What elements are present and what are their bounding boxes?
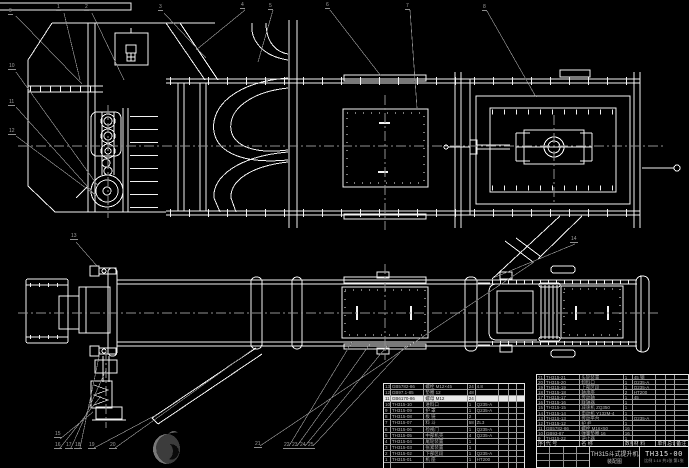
top-view [28,20,680,279]
drawing-footer-note: 比例 1:10 共1张 第1张 [644,458,684,464]
balloon-callout: 8 [482,5,487,11]
drawing-number: TH315-00 [645,450,683,458]
balloon-callout: 20 [109,443,117,449]
bom-cell [517,463,524,468]
balloon-callout: 4 [240,3,245,9]
title-block: TH315斗式提升机 装配图 TH315-00 比例 1:10 共1张 第1张 [536,446,689,468]
balloon-callout: 19 [88,443,96,449]
balloon-callout: 18 [74,443,82,449]
revision-grid [537,447,590,467]
balloon-callout: 24 [299,443,307,449]
bom-table-left: 13GB5782-86螺栓 M12×45244.812GB97.1-85垫圈 1… [383,383,525,468]
bom-cell [476,463,500,468]
balloon-callout: 3 [158,5,163,11]
balloon-callout: 7 [405,4,410,10]
balloon-callout: 21 [254,442,262,448]
bom-cell [424,463,467,468]
drawing-number-cell: TH315-00 比例 1:10 共1张 第1张 [640,447,688,467]
balloon-callout: 16 [54,443,62,449]
balloon-callout: 23 [291,443,299,449]
drawing-title-cell: TH315斗式提升机 装配图 [590,447,640,467]
balloon-callout: 14 [570,237,578,243]
doc-type: 装配图 [607,458,622,465]
balloon-callout: 1 [56,5,61,11]
bom-cell [499,463,509,468]
balloon-callout: 25 [307,443,315,449]
balloon-callout: 9 [8,9,13,15]
bom-row [384,462,524,468]
bom-table-right: 21TH315-21头轮装置145 钢20TH315-20卸料口1Q235-A1… [536,374,689,440]
frame-corner [0,3,131,10]
balloon-callout: 6 [325,3,330,9]
balloon-callout: 11 [8,100,15,106]
bom-cell [391,463,425,468]
logo-blob [153,431,180,464]
balloon-callout: 5 [268,4,273,10]
bom-cell [468,463,476,468]
bom-cell [384,463,391,468]
product-title: TH315斗式提升机 [590,449,638,458]
balloon-callout: 10 [8,64,16,70]
bom-cell [509,463,517,468]
balloon-callout: 22 [283,443,291,449]
balloon-callout: 15 [54,432,62,438]
balloon-callout: 12 [8,129,16,135]
balloon-callout: 17 [65,443,73,449]
balloon-callout: 2 [84,5,89,11]
balloon-callout: 13 [70,234,78,240]
cad-drawing-canvas: 1234567891011121314151617181920212223242… [0,0,689,468]
